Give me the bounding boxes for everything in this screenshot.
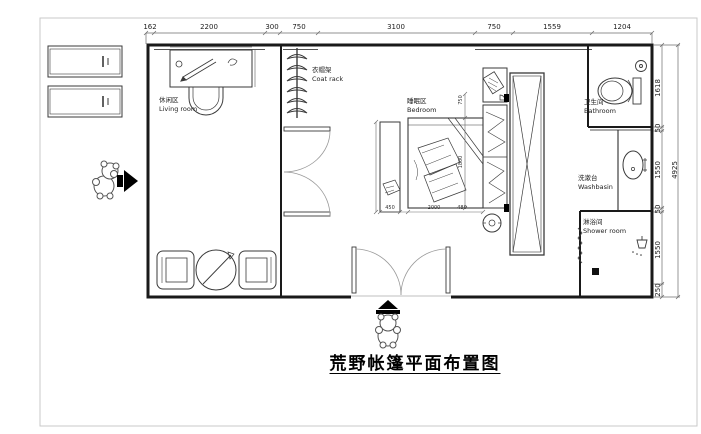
armchair-right bbox=[239, 251, 276, 289]
dim-right-5: 250 bbox=[654, 283, 662, 296]
bedding-shelf bbox=[483, 105, 507, 208]
dim-top-4: 3100 bbox=[387, 23, 405, 31]
dim-right-3: 50 bbox=[654, 205, 662, 214]
label-coat-rack: 衣帽架 Coat rack bbox=[312, 66, 343, 84]
washbasin-sink bbox=[623, 151, 647, 179]
entry-arrow-bottom-icon bbox=[376, 300, 400, 314]
dim-top-7: 1204 bbox=[613, 23, 631, 31]
label-bathroom-zh: 卫生间 bbox=[584, 98, 616, 107]
plan-title: 荒野帐篷平面布置图 bbox=[330, 349, 501, 374]
dim-bed-length: 1800 bbox=[458, 156, 464, 169]
entry-arrow-left-icon bbox=[117, 170, 138, 192]
round-table bbox=[196, 250, 236, 290]
dim-right-1: 50 bbox=[654, 124, 662, 133]
shower-head-icon bbox=[632, 236, 647, 256]
label-bathroom-en: Bathroom bbox=[584, 107, 616, 116]
dim-gap: 480 bbox=[457, 205, 467, 211]
coat-rack bbox=[287, 48, 307, 118]
armchair-left bbox=[157, 251, 194, 289]
label-bedroom-zh: 睡眠区 bbox=[407, 97, 436, 106]
dim-top-1: 2200 bbox=[200, 23, 218, 31]
desk bbox=[170, 47, 255, 87]
label-bathroom: 卫生间 Bathroom bbox=[584, 98, 616, 116]
label-bedroom-en: Bedroom bbox=[407, 106, 436, 115]
wardrobe-x-panel bbox=[510, 73, 544, 255]
dim-nightstand: 450 bbox=[385, 205, 395, 211]
floor-drain-icon bbox=[592, 268, 599, 275]
entry-double-door bbox=[351, 247, 451, 300]
dim-right-0: 1618 bbox=[654, 79, 662, 97]
dim-bed-width: 2000 bbox=[428, 205, 441, 211]
dim-top-5: 750 bbox=[487, 23, 500, 31]
dim-right-total: 4925 bbox=[671, 161, 679, 179]
toilet-paper-icon bbox=[636, 61, 647, 72]
outdoor-cabinets bbox=[48, 46, 122, 117]
dim-top-0: 162 bbox=[143, 23, 156, 31]
label-shower-room: 淋浴间 Shower room bbox=[583, 218, 626, 236]
dim-cabinet: 750 bbox=[458, 95, 464, 105]
floor-plan-canvas: 162 2200 300 750 3100 750 1559 1204 1618… bbox=[0, 0, 701, 434]
label-coat-rack-en: Coat rack bbox=[312, 75, 343, 84]
dim-right-2: 1550 bbox=[654, 161, 662, 179]
floor-stool bbox=[483, 214, 501, 232]
label-living-room: 休闲区 Living room bbox=[159, 96, 197, 114]
label-shower-room-en: Shower room bbox=[583, 227, 626, 236]
label-shower-room-zh: 淋浴间 bbox=[583, 218, 626, 227]
bedside-cabinet-top bbox=[483, 68, 507, 102]
label-living-room-zh: 休闲区 bbox=[159, 96, 197, 105]
label-coat-rack-zh: 衣帽架 bbox=[312, 66, 343, 75]
interior-double-door bbox=[284, 127, 330, 216]
dim-top-6: 1559 bbox=[543, 23, 561, 31]
bear-figure-bottom bbox=[376, 314, 401, 348]
bed bbox=[408, 118, 483, 208]
dim-top-2: 300 bbox=[265, 23, 278, 31]
bear-figure-left bbox=[93, 161, 120, 199]
label-bedroom: 睡眠区 Bedroom bbox=[407, 97, 436, 115]
label-washbasin-en: Washbasin bbox=[578, 183, 613, 192]
label-living-room-en: Living room bbox=[159, 105, 197, 114]
bed-side-bench bbox=[380, 122, 400, 212]
dim-top-3: 750 bbox=[292, 23, 305, 31]
label-washbasin: 洗漱台 Washbasin bbox=[578, 174, 613, 192]
label-washbasin-zh: 洗漱台 bbox=[578, 174, 613, 183]
dim-right-4: 1550 bbox=[654, 241, 662, 259]
dimension-line-top bbox=[144, 31, 654, 44]
